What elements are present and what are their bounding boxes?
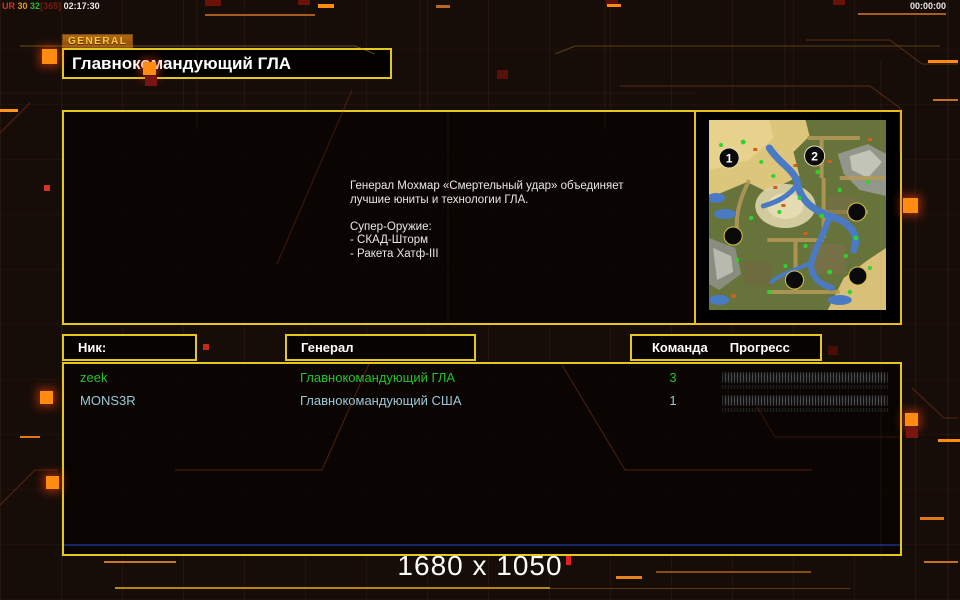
player-load-progressbar <box>722 395 888 406</box>
header-progress-label: Прогресс <box>730 336 790 359</box>
red-square-decor <box>205 0 221 6</box>
player-row-2: MONS3R Главнокомандующий США 1 <box>64 390 900 412</box>
orange-dash-decor <box>933 99 958 101</box>
timer-underline <box>858 13 946 15</box>
red-square-decor <box>497 70 508 79</box>
orange-dash-decor <box>928 60 958 63</box>
header-nick: Ник: <box>62 334 197 361</box>
page-title: Главнокомандующий ГЛА <box>62 48 392 79</box>
net-ur-label: UR <box>2 1 15 11</box>
red-square-decor <box>298 0 310 5</box>
glow-square-decor <box>903 198 918 213</box>
orange-dash-decor <box>920 517 944 520</box>
resolution-label: 1680 x 1050 <box>0 550 960 582</box>
briefing-text: Генерал Мохмар «Смертельный удар» объеди… <box>350 180 690 261</box>
red-square-decor <box>833 0 845 5</box>
loading-screen: UR 30 32[365] 02:17:30 00:00:00 GENERAL … <box>0 0 960 600</box>
header-team-progress: Команда Прогресс <box>630 334 822 361</box>
player-nick: zeek <box>80 370 107 385</box>
network-status: UR 30 32[365] 02:17:30 <box>2 1 100 11</box>
player-row-1: zeek Главнокомандующий ГЛА 3 <box>64 367 900 389</box>
orange-dash-decor <box>318 4 334 8</box>
glow-square-decor <box>143 62 156 75</box>
player-general: Главнокомандующий США <box>300 393 462 408</box>
glow-square-decor <box>46 476 59 489</box>
game-timer: 00:00:00 <box>910 1 946 11</box>
start-position-2: 2 <box>811 150 818 164</box>
red-square-decor <box>44 185 50 191</box>
net-value-2: 32 <box>30 1 40 11</box>
bottom-line-decor <box>550 588 850 589</box>
header-team-label: Команда <box>652 336 708 359</box>
orange-line-decor <box>205 14 315 16</box>
player-general: Главнокомандующий ГЛА <box>300 370 455 385</box>
glow-square-decor <box>42 49 57 64</box>
orange-dash-decor <box>0 109 18 112</box>
glow-square-decor <box>40 391 53 404</box>
orange-dash-decor <box>436 5 450 8</box>
dim-square-decor <box>906 428 918 438</box>
orange-dash-decor <box>20 436 40 438</box>
start-position-1: 1 <box>726 152 733 166</box>
red-square-decor <box>203 344 209 350</box>
orange-dash-decor <box>607 4 621 7</box>
map-preview-frame: 1 2 <box>694 110 902 325</box>
map-preview-image: 1 2 <box>709 120 886 310</box>
red-square-decor <box>828 346 838 355</box>
bottom-line-decor <box>115 587 550 589</box>
header-general: Генерал <box>285 334 476 361</box>
glow-square-decor <box>905 413 918 426</box>
panel-divider-line <box>64 544 900 546</box>
net-bracket-value: [365] <box>40 1 61 11</box>
player-team: 3 <box>658 370 688 385</box>
player-list-panel: zeek Главнокомандующий ГЛА 3 MONS3R Глав… <box>62 362 902 556</box>
player-load-progressbar <box>722 372 888 383</box>
player-team: 1 <box>658 393 688 408</box>
net-value-1: 30 <box>18 1 28 11</box>
dim-square-decor <box>145 76 157 86</box>
player-nick: MONS3R <box>80 393 136 408</box>
orange-dash-decor <box>938 439 960 442</box>
net-time: 02:17:30 <box>64 1 100 11</box>
